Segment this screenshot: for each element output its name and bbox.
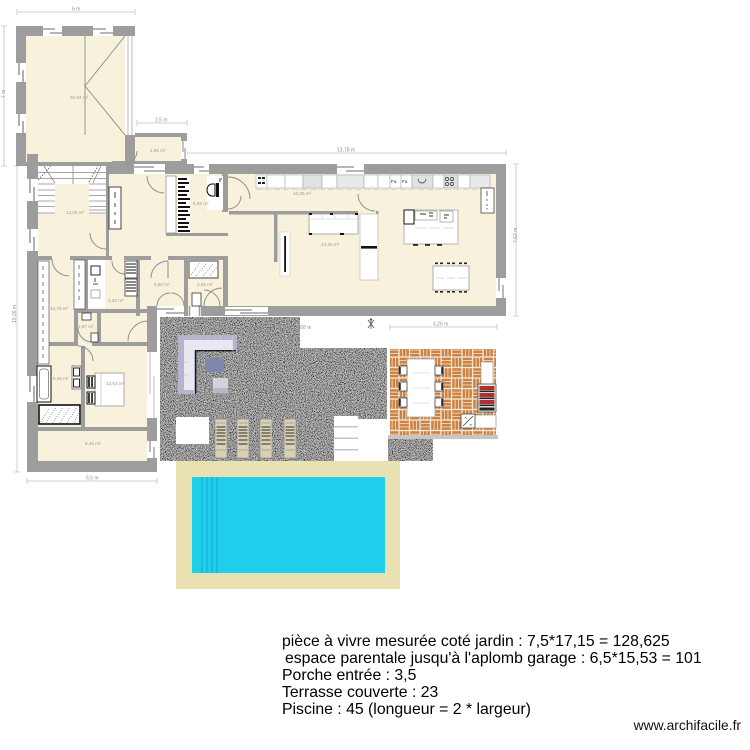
svg-text:Fo.: Fo. — [391, 179, 398, 184]
svg-text:7,52 m: 7,52 m — [513, 228, 519, 243]
svg-text:46,08 m²: 46,08 m² — [256, 389, 274, 394]
svg-text:www.archifacile.fr: www.archifacile.fr — [633, 718, 742, 733]
svg-text:3,63 m²: 3,63 m² — [108, 298, 124, 303]
svg-text:Fo.: Fo. — [402, 179, 409, 184]
svg-text:1,67 m²: 1,67 m² — [78, 324, 94, 329]
svg-text:6,88 m²: 6,88 m² — [193, 201, 209, 206]
svg-text:13,78 m: 13,78 m — [337, 148, 355, 154]
svg-text:Piscine : 45 (longueur = 2 * l: Piscine : 45 (longueur = 2 * largeur) — [282, 701, 531, 718]
svg-text:2,5 m: 2,5 m — [155, 118, 168, 124]
svg-text:7 m: 7 m — [1, 90, 7, 98]
svg-text:4,26 m: 4,26 m — [433, 322, 448, 328]
svg-text:pièce à vivre mesurée coté jar: pièce à vivre mesurée coté jardin : 7,5*… — [282, 633, 670, 650]
svg-text:Terrasse couverte : 23: Terrasse couverte : 23 — [282, 684, 439, 701]
svg-text:3,66 m²: 3,66 m² — [197, 282, 213, 287]
svg-text:13,08 m²: 13,08 m² — [66, 210, 85, 215]
svg-text:10,76 m²: 10,76 m² — [50, 306, 69, 311]
svg-text:9,46 m²: 9,46 m² — [85, 441, 101, 446]
svg-text:6,38 m²: 6,38 m² — [53, 376, 69, 381]
svg-text:44,36 m²: 44,36 m² — [321, 242, 340, 247]
svg-text:6,5 m: 6,5 m — [86, 476, 99, 482]
svg-text:Porche entrée : 3,5: Porche entrée : 3,5 — [282, 667, 417, 684]
svg-text:4,86 m²: 4,86 m² — [150, 148, 166, 153]
svg-text:10,26 m: 10,26 m — [12, 305, 18, 323]
svg-text:30,84 m²: 30,84 m² — [70, 95, 89, 100]
svg-text:13,63 m²: 13,63 m² — [106, 381, 125, 386]
svg-text:6 m: 6 m — [72, 7, 80, 13]
svg-text:5,52 m²: 5,52 m² — [154, 282, 170, 287]
svg-text:espace parentale jusqu'à l'apl: espace parentale jusqu'à l'aplomb garage… — [285, 650, 702, 667]
svg-text:13,36 m²: 13,36 m² — [293, 191, 312, 196]
